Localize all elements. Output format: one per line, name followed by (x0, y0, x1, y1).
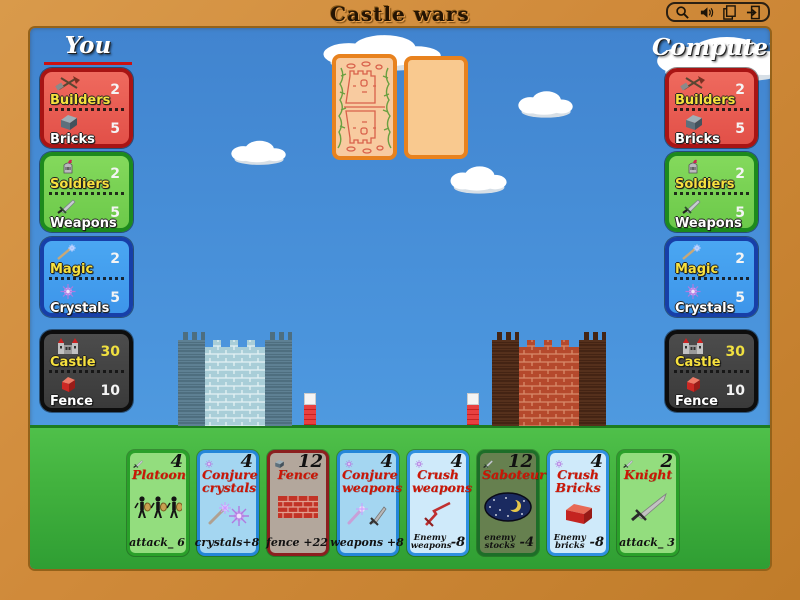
stat-label: Bricks (675, 132, 720, 147)
fence-cap (304, 393, 316, 405)
soldiers-art (132, 482, 184, 534)
stat-value: 5 (110, 205, 120, 221)
card-effect: fence +22 (266, 536, 328, 549)
night-moon-art (482, 482, 534, 534)
card-title: Saboteur (482, 469, 534, 482)
stat-label: Fence (50, 394, 93, 409)
crystal-icon (202, 455, 216, 467)
panel-divider (49, 277, 124, 280)
cloud-icon (226, 136, 290, 167)
stat-label: Magic (675, 262, 718, 277)
card-conjure-weapons[interactable]: 4 Conjure weapons weapons +8 (337, 450, 399, 556)
wand-icon (680, 244, 706, 261)
panel-divider (674, 108, 749, 111)
sword-icon (55, 198, 81, 215)
stat-label: Weapons (50, 216, 117, 231)
card-back-art (336, 58, 393, 156)
stat-value: 2 (735, 251, 745, 267)
fence-cap (467, 393, 479, 405)
card-fence[interactable]: 12 Fence f (267, 450, 329, 556)
card-effect: Enemy weapons (411, 534, 449, 551)
card-effect-value: -4 (520, 535, 534, 550)
player-hand: 4 Platoon (127, 450, 679, 556)
player-name-computer: Computer (652, 34, 770, 61)
castle-icon (680, 337, 706, 354)
you-castle-panel: Castle 30 Fence 10 (40, 330, 133, 412)
you-magic-panel: Magic 2 Crystals 5 (40, 237, 133, 317)
card-title: Conjure crystals (202, 469, 254, 494)
cloud-icon (513, 86, 577, 120)
card-effect: weapons +8 (330, 536, 404, 549)
stat-value: 5 (735, 290, 745, 306)
card-effect: crystals+8 (195, 536, 260, 549)
card-effect: attack_ 3 (619, 536, 675, 549)
wand-sword-art (342, 494, 394, 533)
stat-value: 2 (110, 166, 120, 182)
stat-label: Bricks (50, 132, 95, 147)
game-window: Castle wars You Computer Builders 2 (0, 0, 800, 600)
sword-icon (132, 455, 146, 467)
computer-builders-panel: Builders 2 Bricks 5 (665, 68, 758, 148)
card-crush-weapons[interactable]: 4 Crush weapons Enemy weapons -8 (407, 450, 469, 556)
play-field: You Computer Builders 2 Bricks 5 Soldier… (30, 28, 770, 569)
card-effect: enemy stocks (482, 534, 518, 551)
panel-divider (49, 370, 124, 373)
hammers-icon (55, 75, 81, 92)
sword-icon (680, 198, 706, 215)
stat-label: Soldiers (675, 177, 734, 192)
card-effect: attack_ 6 (129, 536, 185, 549)
card-effect-value: -8 (451, 535, 465, 550)
wand-crystal-art (202, 494, 254, 533)
computer-magic-panel: Magic 2 Crystals 5 (665, 237, 758, 317)
pages-icon[interactable] (722, 5, 737, 20)
cloud-icon (445, 161, 511, 196)
panel-divider (49, 192, 124, 195)
card-conjure-crystals[interactable]: 4 Conjure crystals crystals+8 (197, 450, 259, 556)
toolbar (666, 2, 770, 22)
knight-helmet-icon (680, 159, 706, 176)
sound-icon[interactable] (699, 5, 714, 20)
stat-value: 5 (735, 121, 745, 137)
panel-divider (674, 370, 749, 373)
card-title: Conjure weapons (342, 469, 394, 494)
panel-divider (674, 277, 749, 280)
knight-helmet-icon (55, 159, 81, 176)
stat-label: Builders (675, 93, 735, 108)
red-brick-art (552, 494, 604, 533)
card-title: Platoon (132, 469, 184, 482)
castle-icon (55, 337, 81, 354)
computer-castle (492, 330, 606, 426)
stat-label: Castle (675, 355, 721, 370)
you-builders-panel: Builders 2 Bricks 5 (40, 68, 133, 148)
brick-wall-art (272, 482, 324, 534)
stat-value: 2 (735, 82, 745, 98)
stat-label: Soldiers (50, 177, 109, 192)
sword-icon (622, 455, 636, 467)
magnifier-icon[interactable] (675, 5, 690, 20)
card-title: Crush Bricks (552, 469, 604, 494)
card-effect: Enemy bricks (552, 534, 588, 551)
stat-value: 5 (735, 205, 745, 221)
stat-label: Crystals (50, 301, 109, 316)
stat-label: Crystals (675, 301, 734, 316)
stat-value: 5 (110, 121, 120, 137)
crystal-icon (55, 283, 81, 300)
card-crush-bricks[interactable]: 4 Crush Bricks Enemy bricks -8 (547, 450, 609, 556)
card-title: Crush weapons (412, 469, 464, 494)
brick-icon (272, 455, 286, 467)
stat-label: Magic (50, 262, 93, 277)
computer-soldiers-panel: Soldiers 2 Weapons 5 (665, 152, 758, 232)
fence-wall (467, 405, 479, 425)
card-saboteur[interactable]: 12 Saboteur (477, 450, 539, 556)
redbrick-icon (55, 376, 81, 393)
exit-icon[interactable] (746, 5, 761, 20)
computer-fence (466, 393, 480, 425)
computer-castle-panel: Castle 30 Fence 10 (665, 330, 758, 412)
stat-value: 2 (110, 82, 120, 98)
panel-divider (674, 192, 749, 195)
stat-value: 30 (726, 344, 745, 360)
redbrick-icon (680, 376, 706, 393)
crystal-icon (552, 455, 566, 467)
stat-label: Builders (50, 93, 110, 108)
card-title: Knight (622, 469, 674, 482)
crystal-icon (342, 455, 356, 467)
stat-label: Castle (50, 355, 96, 370)
stat-value: 2 (735, 166, 745, 182)
stat-value: 2 (110, 251, 120, 267)
you-soldiers-panel: Soldiers 2 Weapons 5 (40, 152, 133, 232)
stat-value: 5 (110, 290, 120, 306)
panel-divider (49, 108, 124, 111)
card-platoon[interactable]: 4 Platoon (127, 450, 189, 556)
card-effect-value: -8 (590, 535, 604, 550)
sword-art (622, 482, 674, 534)
card-knight[interactable]: 2 Knight attack_ 3 (617, 450, 679, 556)
draw-pile-card[interactable] (332, 54, 397, 160)
brick-icon (680, 114, 706, 131)
discard-pile-card[interactable] (404, 56, 468, 159)
card-title: Fence (272, 469, 324, 482)
stat-label: Weapons (675, 216, 742, 231)
you-castle (178, 330, 292, 426)
stat-value: 10 (726, 383, 745, 399)
hammers-icon (680, 75, 706, 92)
fence-wall (304, 405, 316, 425)
you-fence (303, 393, 317, 425)
player-name-you: You (42, 32, 134, 59)
broken-sword-art (412, 494, 464, 533)
sword-icon (482, 455, 496, 467)
crystal-icon (680, 283, 706, 300)
stat-value: 30 (101, 344, 120, 360)
turn-indicator-underline (44, 62, 132, 65)
title-bar: Castle wars (0, 0, 800, 28)
wand-icon (55, 244, 81, 261)
stat-label: Fence (675, 394, 718, 409)
brick-icon (55, 114, 81, 131)
crystal-icon (412, 455, 426, 467)
stat-value: 10 (101, 383, 120, 399)
